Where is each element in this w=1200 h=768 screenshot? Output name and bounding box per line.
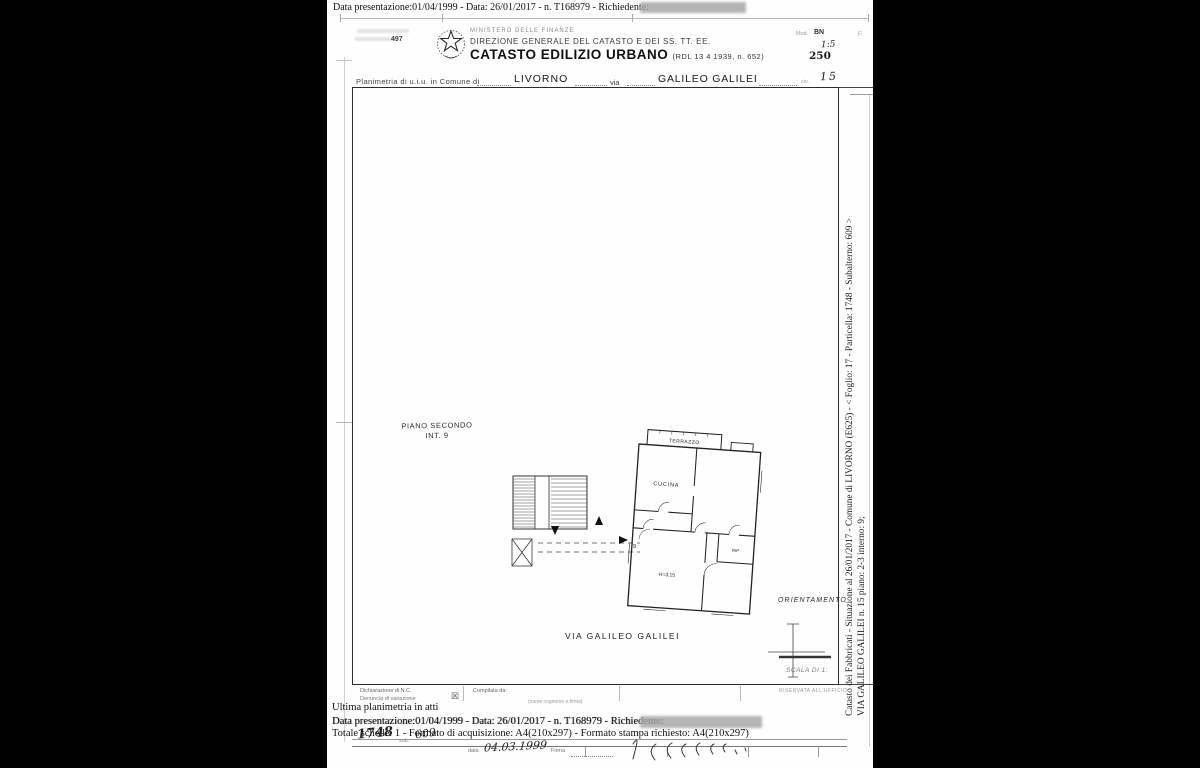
handwritten-date: 04.03.1999 bbox=[483, 738, 547, 754]
faint-print bbox=[355, 37, 395, 41]
dotted-leader bbox=[571, 755, 613, 757]
scale-handwritten: 250 bbox=[809, 50, 831, 62]
direction-label: DIREZIONE GENERALE DEL CATASTO E DEI SS.… bbox=[470, 37, 711, 46]
room-label-rip: RIP. bbox=[732, 548, 740, 554]
stairwell bbox=[513, 476, 587, 529]
floor-plan-drawing: 9 TERRAZZO CUCINA RIP. H=3.15 VIA GALILE… bbox=[352, 87, 839, 685]
left-margin-tick bbox=[336, 60, 352, 61]
redacted-requester-top bbox=[640, 2, 746, 13]
footer-separator bbox=[463, 686, 464, 701]
compiled-by-label: Compilata da: bbox=[473, 688, 507, 694]
title-ref: (RDL 13 4 1939, n. 652) bbox=[673, 52, 765, 61]
via-value: GALILEO GALILEI bbox=[658, 73, 758, 85]
arrow-up-icon bbox=[595, 516, 603, 525]
document-page: Data presentazione:01/04/1999 - Data: 26… bbox=[327, 0, 873, 768]
rule-tick bbox=[442, 14, 443, 22]
scale-label: SCALA DI 1: bbox=[786, 667, 828, 674]
footer-separator bbox=[619, 686, 620, 701]
state-emblem-icon bbox=[435, 25, 467, 65]
mod-label: Mod. bbox=[796, 31, 808, 37]
checkbox-checked-icon: ☒ bbox=[451, 691, 459, 702]
margin-annotation: Catasto dei Fabbricati - Situazione al 2… bbox=[845, 150, 868, 716]
bottom-tick bbox=[818, 746, 819, 757]
floor-caption: PIANO SECONDO INT. 9 bbox=[387, 420, 487, 442]
street-label: VIA GALILEO GALILEI bbox=[565, 631, 680, 641]
dotted-leader bbox=[759, 84, 797, 86]
ministry-label: MINISTERO DELLE FINANZE bbox=[470, 28, 574, 34]
dotted-leader bbox=[477, 84, 511, 86]
room-label-terrazzo: TERRAZZO bbox=[669, 438, 700, 446]
document-title: CATASTO EDILIZIO URBANO (RDL 13 4 1939, … bbox=[470, 47, 764, 62]
mod-value: BN bbox=[814, 29, 824, 36]
redacted-requester-bottom bbox=[640, 716, 762, 728]
office-reserved-label: RISERVATA ALL'UFFICIO bbox=[779, 688, 847, 694]
frame-rule-ext-top bbox=[839, 87, 873, 88]
form-number: 497 bbox=[391, 36, 403, 43]
elevator-shaft bbox=[512, 539, 532, 566]
planimetria-label: Planimetria di u.i.u. in Comune di bbox=[356, 77, 480, 86]
compiled-by-sublabel: (nome cognome e firma) bbox=[528, 699, 582, 705]
margin-annotation-line1: Catasto dei Fabbricati - Situazione al 2… bbox=[845, 150, 857, 716]
mod-f-label: F. bbox=[858, 32, 863, 38]
left-margin-tick bbox=[336, 422, 352, 423]
orientation-label: ORIENTAMENTO bbox=[778, 597, 847, 604]
rule-tick bbox=[868, 14, 869, 22]
ultima-planimetria-line: Ultima planimetria in atti bbox=[332, 702, 438, 713]
scale-handwritten-top: 1:5 bbox=[821, 40, 836, 51]
date-label: data bbox=[468, 748, 479, 754]
signature-label: Firma bbox=[551, 748, 565, 754]
signature-scribble bbox=[625, 736, 775, 768]
via-label: via bbox=[610, 78, 620, 87]
footer-separator bbox=[740, 686, 741, 701]
scanned-cadastral-document: Data presentazione:01/04/1999 - Data: 26… bbox=[0, 0, 1200, 768]
door-number: 9 bbox=[633, 544, 636, 550]
dotted-leader bbox=[627, 84, 655, 86]
dotted-leader bbox=[575, 84, 607, 86]
print-header-line: Data presentazione:01/04/1999 - Data: 26… bbox=[333, 2, 649, 13]
faint-print bbox=[357, 29, 409, 33]
arrow-down-icon bbox=[551, 526, 559, 535]
civ-label: civ. bbox=[801, 79, 809, 85]
floor-caption-line2: INT. 9 bbox=[387, 430, 487, 442]
entrance-door-arc bbox=[639, 529, 650, 539]
margin-annotation-line2: VIA GALILEO GALILEI n. 15 piano: 2-3 int… bbox=[857, 150, 869, 716]
title-text: CATASTO EDILIZIO URBANO bbox=[470, 47, 668, 62]
comune-value: LIVORNO bbox=[514, 73, 568, 85]
apartment-outline: TERRAZZO CUCINA RIP. H=3.15 bbox=[625, 429, 764, 617]
declaration-label-1: Dichiarazione di N.C. bbox=[360, 688, 412, 694]
civ-value: 15 bbox=[820, 70, 838, 84]
room-label-height: H=3.15 bbox=[659, 572, 676, 579]
room-label-cucina: CUCINA bbox=[653, 481, 679, 489]
right-margin-tick bbox=[850, 94, 873, 95]
right-margin-line bbox=[869, 94, 870, 747]
left-margin-line bbox=[344, 57, 345, 742]
form-top-rule bbox=[340, 18, 868, 19]
rule-tick bbox=[340, 14, 341, 22]
rule-tick bbox=[632, 14, 633, 22]
